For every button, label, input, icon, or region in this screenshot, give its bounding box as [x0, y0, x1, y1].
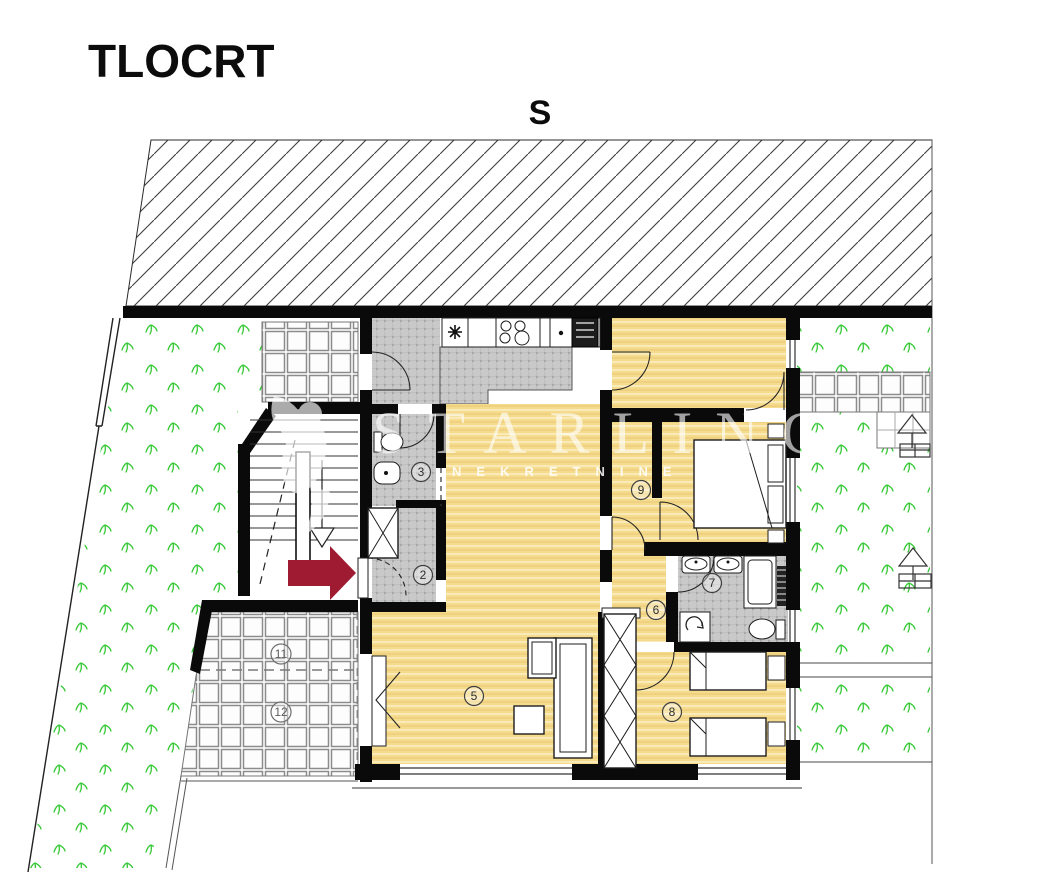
room-label-bedroom-south: 8 [663, 703, 682, 722]
kitchen-floor [440, 347, 572, 404]
dining-room-floor [612, 318, 786, 408]
svg-text:6: 6 [653, 603, 660, 617]
toilet [749, 619, 775, 639]
wardrobe-column [604, 614, 636, 768]
svg-text:9: 9 [638, 483, 645, 497]
boiler-icon [448, 325, 462, 339]
watermark-subtitle-text: NEKRETNINE [452, 464, 687, 479]
north-orientation-label: S [529, 94, 552, 132]
entry-corridor-floor [372, 318, 440, 404]
room-label-terrace-upper: 11 [271, 644, 291, 664]
watermark-brand-text: STARLING [372, 400, 848, 466]
floor-plan-drawing: TLOCRT S [0, 0, 1062, 889]
page-title: TLOCRT [88, 35, 275, 87]
svg-text:3: 3 [418, 465, 425, 479]
svg-text:12: 12 [274, 705, 288, 719]
room-label-bedroom-east: 9 [632, 481, 651, 500]
svg-text:7: 7 [709, 576, 716, 590]
svg-text:11: 11 [275, 647, 288, 661]
room-label-wc: 3 [412, 463, 431, 482]
room-label-terrace-lower: 12 [271, 702, 291, 722]
svg-text:8: 8 [669, 705, 676, 719]
floor-plan-page: TLOCRT S [0, 0, 1062, 889]
room-label-living-room: 5 [465, 687, 484, 706]
svg-text:5: 5 [471, 689, 478, 703]
entrance-door-leaf [358, 558, 368, 598]
terrace-sliding-door [372, 656, 386, 746]
room-label-bathroom: 7 [703, 574, 722, 593]
svg-text:2: 2 [420, 568, 427, 582]
north-terrace [262, 322, 358, 402]
room-label-hallway: 6 [647, 601, 666, 620]
room-label-entry-hall: 2 [414, 566, 433, 585]
south-terrace [181, 612, 358, 776]
coffee-table [514, 706, 544, 734]
stair-down-arrow [310, 528, 334, 547]
roof-hatch-area [126, 140, 932, 306]
